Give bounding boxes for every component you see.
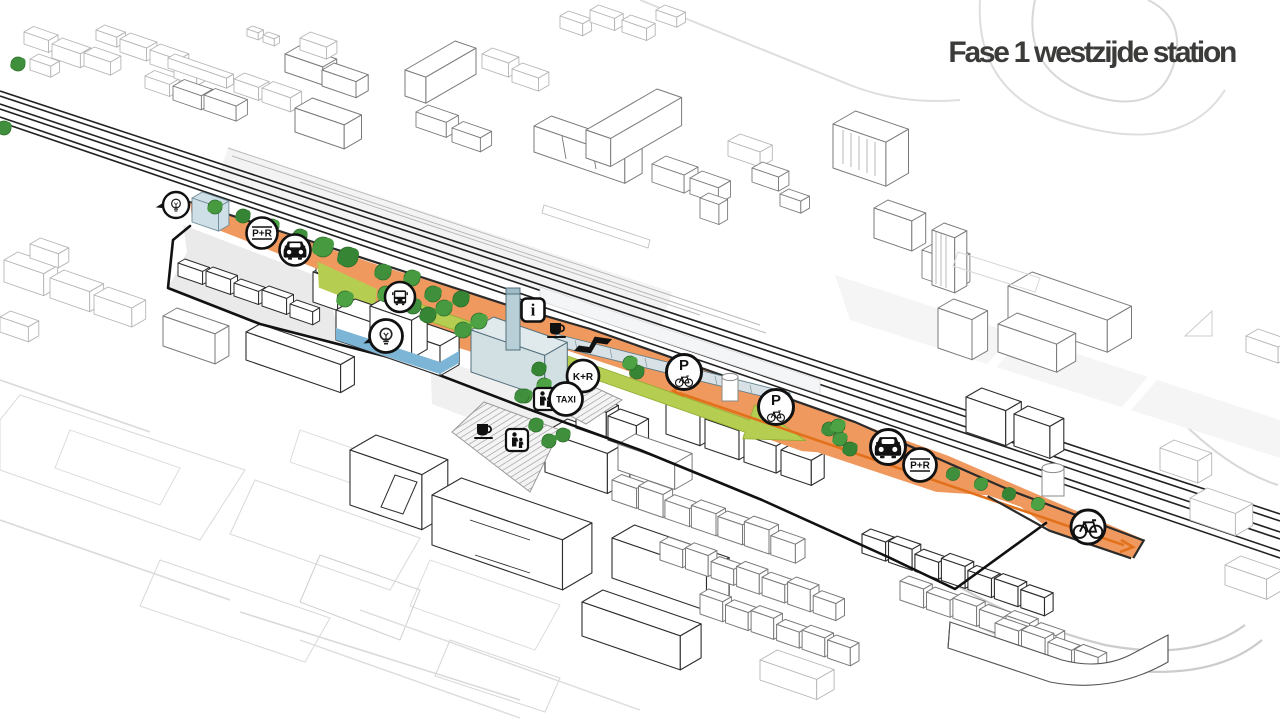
svg-text:P: P	[771, 392, 781, 409]
svg-text:P+R: P+R	[252, 229, 273, 240]
svg-text:P+R: P+R	[910, 461, 931, 472]
svg-text:K+R: K+R	[573, 372, 594, 383]
svg-text:Fase 1 westzijde station: Fase 1 westzijde station	[948, 36, 1236, 69]
svg-text:i: i	[531, 301, 536, 320]
svg-text:P: P	[679, 357, 689, 374]
svg-text:TAXI: TAXI	[556, 395, 576, 405]
